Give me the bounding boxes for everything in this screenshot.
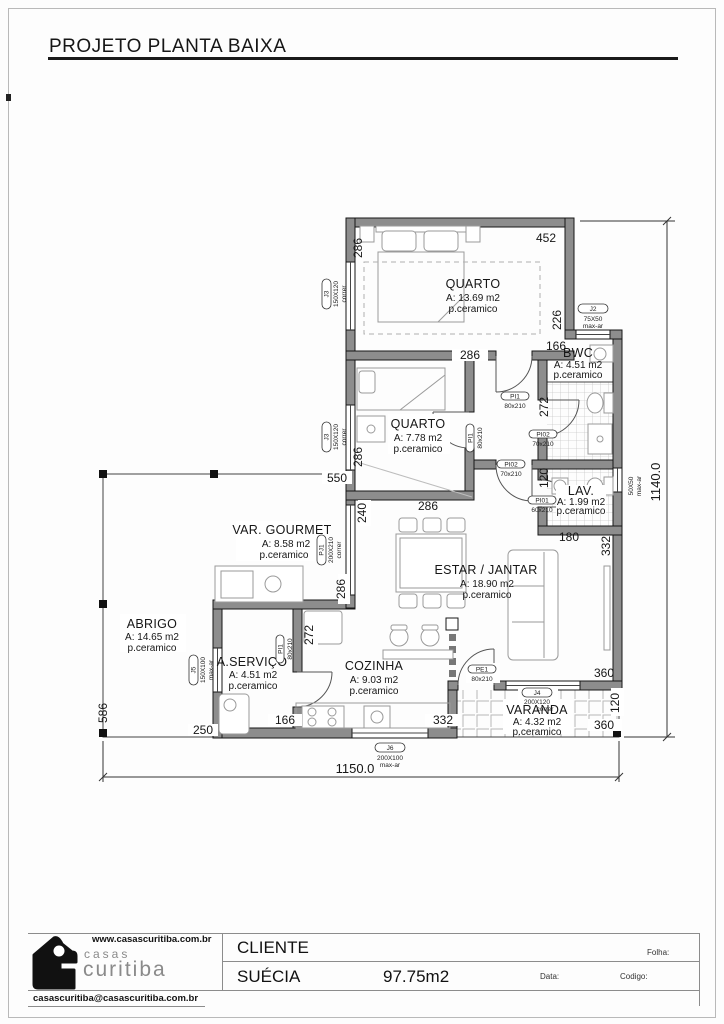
svg-text:150X120: 150X120	[333, 281, 340, 307]
dim-550: 550	[327, 471, 347, 485]
dim-240: 240	[355, 503, 369, 523]
svg-text:ESTAR / JANTAR: ESTAR / JANTAR	[434, 563, 537, 577]
svg-text:50X50: 50X50	[628, 476, 635, 495]
chair	[447, 518, 465, 532]
pillow	[382, 231, 416, 251]
svg-text:BWC: BWC	[563, 346, 593, 360]
svg-text:70x210: 70x210	[500, 471, 522, 478]
data-label: Data:	[540, 972, 559, 981]
room-label-quarto1: QUARTO A: 13.69 m2 p.ceramico	[446, 277, 501, 315]
svg-text:p.ceramico: p.ceramico	[128, 643, 177, 654]
dim-250: 250	[193, 723, 213, 737]
toilet-tank	[604, 393, 613, 413]
svg-text:A: 18.90 m2: A: 18.90 m2	[460, 579, 514, 590]
svg-text:COZINHA: COZINHA	[345, 659, 404, 673]
svg-text:VAR. GOURMET: VAR. GOURMET	[232, 523, 331, 537]
svg-text:A: 8.58 m2: A: 8.58 m2	[262, 539, 311, 550]
svg-text:J2: J2	[590, 306, 597, 313]
svg-text:PJ1: PJ1	[319, 544, 326, 556]
svg-text:A: 13.69 m2: A: 13.69 m2	[446, 293, 500, 304]
svg-text:p.ceramico: p.ceramico	[394, 444, 443, 455]
pillow	[359, 371, 375, 393]
dim-226: 226	[550, 310, 564, 330]
svg-text:p.ceramico: p.ceramico	[229, 681, 278, 692]
dim-120-lav: 120	[537, 468, 551, 488]
dim-272-coz: 272	[302, 625, 316, 645]
svg-text:80x210: 80x210	[471, 676, 493, 683]
overall-width-dim: 1150.0	[99, 741, 623, 782]
room-label-quarto2: QUARTO A: 7.78 m2 p.ceramico	[391, 417, 446, 455]
stool	[421, 628, 439, 646]
window-label-j2: J2 75X50 max-ar	[578, 304, 608, 330]
room-label-abrigo: ABRIGO A: 14.65 m2 p.ceramico	[125, 617, 179, 654]
total-area: 97.75m2	[383, 967, 449, 987]
svg-text:p.ceramico: p.ceramico	[557, 506, 606, 517]
svg-text:J6: J6	[387, 745, 394, 752]
svg-text:PI02: PI02	[504, 462, 518, 469]
dim-452: 452	[536, 231, 556, 245]
svg-text:200X210: 200X210	[328, 537, 335, 563]
svg-text:J4: J4	[534, 690, 541, 697]
svg-text:PI02: PI02	[536, 432, 550, 439]
floor-plan: QUARTO A: 13.69 m2 p.ceramico QUARTO A: …	[0, 0, 724, 1024]
svg-text:ABRIGO: ABRIGO	[127, 617, 177, 631]
stool	[390, 628, 408, 646]
svg-text:correr: correr	[341, 285, 348, 303]
svg-text:LAV.: LAV.	[568, 484, 594, 498]
window-label-j5: J5 150X100 max-ar	[189, 655, 215, 685]
svg-text:80x210: 80x210	[477, 427, 484, 449]
pillow	[424, 231, 458, 251]
column-cozinha	[446, 618, 458, 630]
svg-text:PI1: PI1	[468, 433, 475, 443]
svg-text:A: 14.65 m2: A: 14.65 m2	[125, 632, 179, 643]
logo-house-icon	[34, 938, 76, 988]
svg-text:PI01: PI01	[535, 498, 549, 505]
svg-text:A: 7.78 m2: A: 7.78 m2	[394, 433, 443, 444]
svg-text:p.ceramico: p.ceramico	[463, 590, 512, 601]
svg-text:max-ar: max-ar	[583, 323, 604, 330]
stove	[302, 706, 344, 728]
door-label-pi1a: PI1 80x210	[501, 392, 529, 410]
dim-286-estar: 286	[334, 579, 348, 599]
svg-text:PI1: PI1	[510, 394, 520, 401]
dim-286-q2b: 286	[418, 499, 438, 513]
dim-total-height: 1140.0	[648, 463, 663, 502]
dim-272-bwc: 272	[537, 397, 551, 417]
desk	[357, 416, 385, 442]
svg-text:A: 9.03 m2: A: 9.03 m2	[350, 675, 399, 686]
svg-text:max-ar: max-ar	[380, 762, 401, 769]
svg-text:correr: correr	[341, 428, 348, 446]
svg-text:p.ceramico: p.ceramico	[554, 370, 603, 381]
dim-180: 180	[559, 530, 579, 544]
chair	[423, 594, 441, 608]
svg-text:p.ceramico: p.ceramico	[260, 550, 309, 561]
dim-286-mid: 286	[460, 348, 480, 362]
svg-text:correr: correr	[336, 541, 343, 559]
chair	[399, 518, 417, 532]
website: www.casascuritiba.com.br	[92, 934, 212, 945]
svg-text:max-ar: max-ar	[636, 475, 643, 496]
svg-text:200X100: 200X100	[377, 755, 403, 762]
folha-label: Folha:	[647, 948, 669, 957]
svg-text:150X120: 150X120	[333, 424, 340, 450]
dim-166-bwc: 166	[546, 339, 566, 353]
svg-text:PI1: PI1	[278, 644, 285, 654]
window-label-j3b: J3 150X120 correr	[322, 422, 348, 452]
dim-332-coz: 332	[433, 713, 453, 727]
window-label-pj1: PJ1 200X210 correr	[317, 535, 343, 565]
svg-text:p.ceramico: p.ceramico	[513, 727, 562, 738]
svg-text:200X120: 200X120	[524, 699, 550, 706]
company-logo	[30, 936, 82, 990]
svg-text:correr: correr	[537, 706, 555, 713]
counter	[383, 650, 453, 659]
window-label-j6: J6 200X100 max-ar	[375, 743, 405, 769]
client-value: SUÉCIA	[237, 967, 300, 987]
email: casascuritiba@casascuritiba.com.br	[33, 993, 198, 1004]
svg-text:80x210: 80x210	[287, 638, 294, 660]
dim-286-q2: 286	[351, 447, 365, 467]
dim-166-serv: 166	[275, 713, 295, 727]
kitchen-sink	[364, 706, 390, 728]
chair	[399, 594, 417, 608]
door-label-pi1b: PI1 80x210	[466, 424, 484, 452]
window-label-j3a: J3 150X120 correr	[322, 279, 348, 309]
svg-text:J3: J3	[324, 433, 331, 440]
dim-360-a: 360	[594, 666, 614, 680]
drawing-sheet: PROJETO PLANTA BAIXA	[0, 0, 724, 1024]
door-label-pi02b: PI02 70x210	[497, 460, 525, 478]
svg-text:80x210: 80x210	[504, 403, 526, 410]
dim-286-q1: 286	[351, 238, 365, 258]
shower	[588, 424, 612, 454]
svg-text:QUARTO: QUARTO	[446, 277, 501, 291]
svg-text:max-ar: max-ar	[208, 659, 215, 680]
svg-text:70x210: 70x210	[532, 441, 554, 448]
dim-586: 586	[96, 703, 110, 723]
room-label-cozinha: COZINHA A: 9.03 m2 p.ceramico	[345, 659, 404, 697]
svg-text:J5: J5	[191, 666, 198, 673]
window-label-j1: 50X50 max-ar	[628, 475, 643, 496]
dim-120-var: 120	[608, 693, 622, 713]
svg-text:60x210: 60x210	[531, 507, 553, 514]
dim-total-width: 1150.0	[336, 761, 375, 776]
dim-360-b: 360	[594, 718, 614, 732]
dim-332-estar: 332	[599, 536, 613, 556]
tv-rack	[604, 566, 610, 650]
svg-text:QUARTO: QUARTO	[391, 417, 446, 431]
logo-text-curitiba: curitiba	[83, 958, 167, 982]
codigo-label: Codigo:	[620, 972, 648, 981]
svg-text:A: 4.51 m2: A: 4.51 m2	[229, 670, 278, 681]
client-label: CLIENTE	[237, 938, 309, 958]
svg-text:150X100: 150X100	[200, 657, 207, 683]
svg-text:J3: J3	[324, 290, 331, 297]
toilet	[587, 393, 603, 413]
chair	[423, 518, 441, 532]
nightstand	[466, 226, 480, 242]
svg-text:PE1: PE1	[476, 667, 489, 674]
svg-text:p.ceramico: p.ceramico	[350, 686, 399, 697]
svg-text:p.ceramico: p.ceramico	[449, 304, 498, 315]
svg-text:75X50: 75X50	[584, 316, 603, 323]
